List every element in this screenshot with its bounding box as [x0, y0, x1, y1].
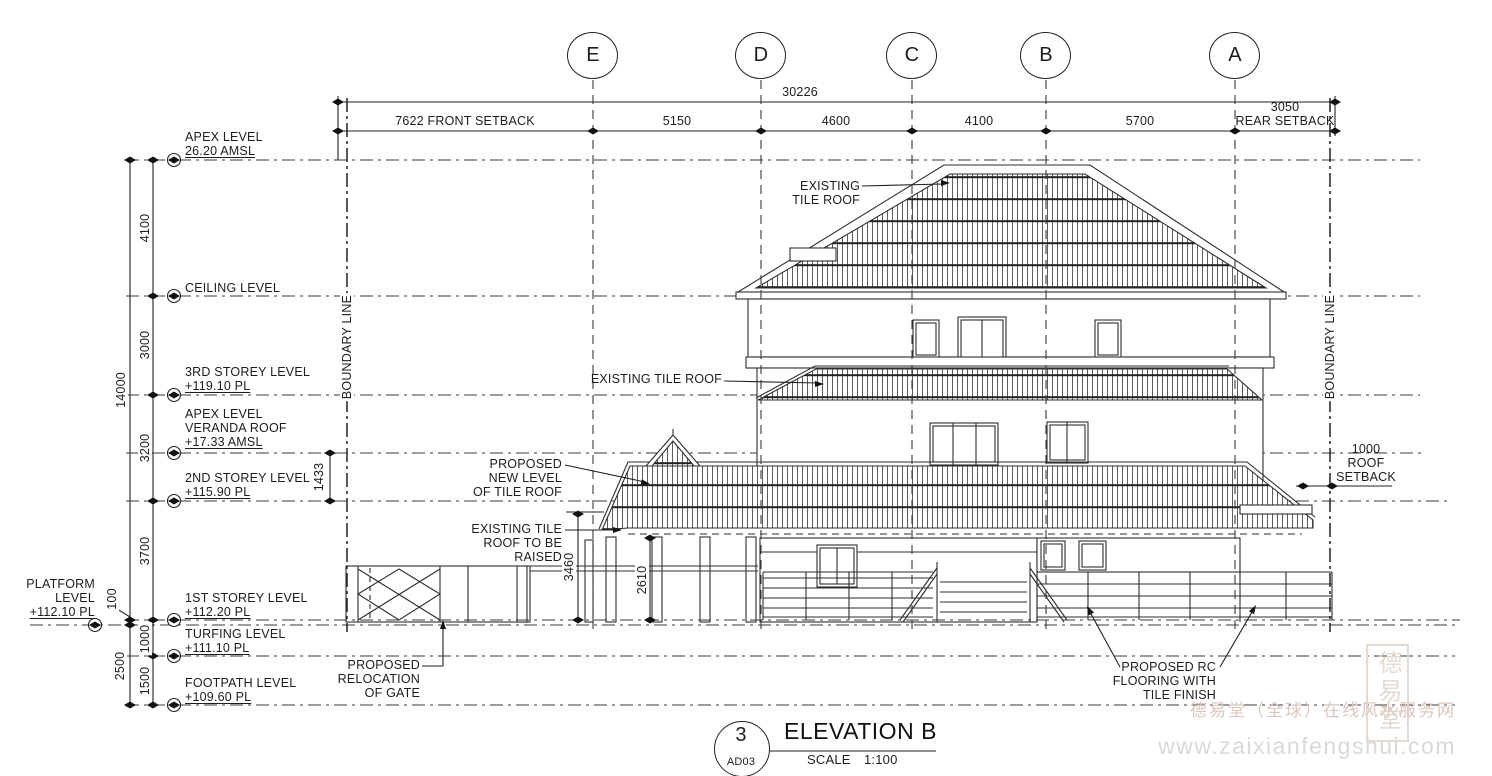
note-roof-setback: 1000 ROOF SETBACK	[1336, 442, 1396, 484]
vdim-3000: 3000	[138, 329, 152, 362]
level-veranda-value: +17.33 AMSL	[185, 435, 287, 449]
dim-overall: 30226	[782, 85, 818, 99]
dim-rear-setback-label: REAR SETBACK	[1236, 114, 1335, 128]
note-proposed-new-roof: PROPOSED NEW LEVEL OF TILE ROOF	[473, 457, 562, 499]
level-footpath-name: FOOTPATH LEVEL	[185, 676, 296, 690]
note-line: FLOORING WITH	[1113, 674, 1216, 688]
level-turfing-name: TURFING LEVEL	[185, 627, 286, 641]
note-line: EXISTING	[792, 179, 860, 193]
level-platform-name1: PLATFORM	[26, 577, 95, 591]
scale-value: 1:100	[864, 753, 898, 767]
note-existing-tile-roof-mid: EXISTING TILE ROOF	[591, 372, 722, 386]
level-veranda-name1: APEX LEVEL	[185, 407, 287, 421]
level-platform-name2: LEVEL	[26, 591, 95, 605]
dim-d-c: 4600	[822, 114, 851, 128]
dim-c-b: 4100	[965, 114, 994, 128]
dim-b-a: 5700	[1126, 114, 1155, 128]
level-veranda-name2: VERANDA ROOF	[185, 421, 287, 435]
note-line: NEW LEVEL	[473, 471, 562, 485]
note-line: OF GATE	[338, 686, 420, 700]
grid-label-a: A	[1228, 43, 1242, 67]
level-turfing: TURFING LEVEL +111.10 PL	[185, 627, 286, 655]
note-line: RAISED	[471, 550, 562, 564]
note-line: RELOCATION	[338, 672, 420, 686]
level-storey3: 3RD STOREY LEVEL +119.10 PL	[185, 365, 310, 393]
note-roof-to-be-raised: EXISTING TILE ROOF TO BE RAISED	[471, 522, 562, 564]
level-storey2: 2ND STOREY LEVEL +115.90 PL	[185, 471, 310, 499]
vdim-1000: 1000	[138, 623, 152, 656]
level-storey2-value: +115.90 PL	[185, 485, 310, 499]
boundary-label-right: BOUNDARY LINE	[1323, 293, 1337, 401]
watermark-seal: 德易堂	[1366, 644, 1409, 742]
vdim-14000: 14000	[114, 370, 128, 410]
dim-front-setback: 7622 FRONT SETBACK	[395, 114, 535, 128]
level-markers	[89, 154, 181, 712]
dim-e-d: 5150	[663, 114, 692, 128]
watermark-url: www.zaixianfengshui.com	[1158, 733, 1456, 759]
level-platform-value: +112.10 PL	[26, 605, 95, 619]
boundary-label-left: BOUNDARY LINE	[340, 293, 354, 401]
gate	[346, 566, 530, 622]
note-line: 1000	[1336, 442, 1396, 456]
note-line: OF TILE ROOF	[473, 485, 562, 499]
level-apex-value: 26.20 AMSL	[185, 144, 263, 158]
note-line: ROOF TO BE	[471, 536, 562, 550]
grid-label-e: E	[586, 43, 600, 67]
vdim-1433: 1433	[312, 461, 326, 494]
dim-rear-setback-value: 3050	[1236, 100, 1335, 114]
dim-rear-setback: 3050 REAR SETBACK	[1236, 100, 1335, 128]
note-line: EXISTING TILE	[471, 522, 562, 536]
level-apex-name: APEX LEVEL	[185, 130, 263, 144]
vdim-4100: 4100	[138, 212, 152, 245]
drawing-number: 3	[735, 723, 746, 747]
vdim-1500: 1500	[138, 665, 152, 698]
vdim-3200: 3200	[138, 432, 152, 465]
note-gate-relocation: PROPOSED RELOCATION OF GATE	[338, 658, 420, 700]
note-line: SETBACK	[1336, 470, 1396, 484]
level-turfing-value: +111.10 PL	[185, 641, 286, 655]
drawing-title: ELEVATION B	[784, 719, 937, 744]
level-platform: PLATFORM LEVEL +112.10 PL	[26, 577, 95, 619]
level-footpath-value: +109.60 PL	[185, 690, 296, 704]
grid-label-d: D	[754, 43, 769, 67]
scale-label: SCALE	[807, 753, 851, 767]
level-storey3-value: +119.10 PL	[185, 379, 310, 393]
note-line: TILE ROOF	[792, 193, 860, 207]
level-veranda-apex: APEX LEVEL VERANDA ROOF +17.33 AMSL	[185, 407, 287, 449]
note-line: PROPOSED	[473, 457, 562, 471]
note-line: ROOF	[1336, 456, 1396, 470]
level-storey1-value: +112.20 PL	[185, 605, 308, 619]
level-storey3-name: 3RD STOREY LEVEL	[185, 365, 310, 379]
level-storey1: 1ST STOREY LEVEL +112.20 PL	[185, 591, 308, 619]
note-line: PROPOSED	[338, 658, 420, 672]
level-apex: APEX LEVEL 26.20 AMSL	[185, 130, 263, 158]
vdim-2500: 2500	[113, 650, 127, 683]
level-storey1-name: 1ST STOREY LEVEL	[185, 591, 308, 605]
vdim-3700: 3700	[138, 535, 152, 568]
watermark-text: 德易堂（全球）在线风水服务网	[1190, 701, 1456, 721]
elevation-sheet: E D C B A 30226 7622 FRONT SETBACK 5150 …	[0, 0, 1492, 776]
level-ceiling: CEILING LEVEL	[185, 281, 280, 295]
vdim-100: 100	[105, 586, 119, 611]
note-existing-tile-roof-top: EXISTING TILE ROOF	[792, 179, 860, 207]
note-rc-flooring: PROPOSED RC FLOORING WITH TILE FINISH	[1113, 660, 1216, 702]
note-line: TILE FINISH	[1113, 688, 1216, 702]
level-storey2-name: 2ND STOREY LEVEL	[185, 471, 310, 485]
vdim-3460: 3460	[562, 551, 576, 584]
drawing-sheet: AD03	[727, 756, 755, 768]
note-line: PROPOSED RC	[1113, 660, 1216, 674]
grid-label-b: B	[1039, 43, 1053, 67]
vdim-2610: 2610	[635, 564, 649, 597]
grid-label-c: C	[905, 43, 920, 67]
level-footpath: FOOTPATH LEVEL +109.60 PL	[185, 676, 296, 704]
